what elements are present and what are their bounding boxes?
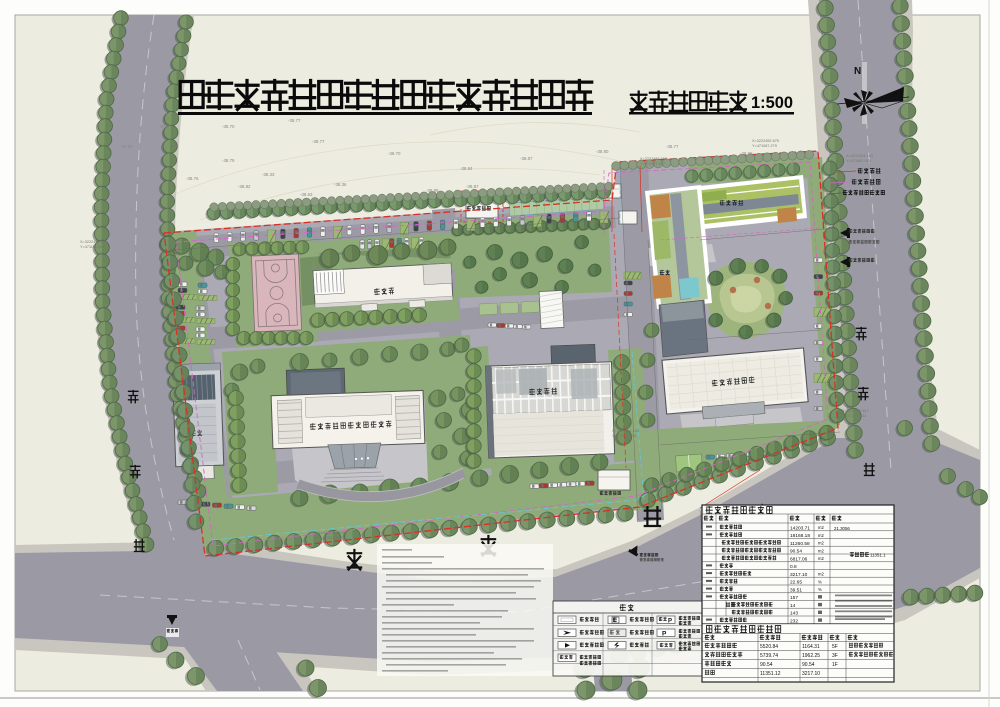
- svg-text:m2: m2: [818, 541, 824, 546]
- svg-text:X=3222349.558: X=3222349.558: [318, 531, 345, 535]
- svg-text:0.8: 0.8: [790, 564, 797, 570]
- svg-text:11351.12: 11351.12: [760, 671, 781, 677]
- svg-text:1164.31: 1164.31: [802, 644, 820, 650]
- svg-text:157: 157: [790, 595, 798, 601]
- svg-text:-38.80: -38.80: [596, 149, 609, 154]
- svg-text:-38.33: -38.33: [262, 172, 275, 177]
- svg-text:Y=471147.538: Y=471147.538: [612, 434, 637, 438]
- svg-text:18168.18: 18168.18: [790, 533, 810, 539]
- svg-text:m2: m2: [818, 572, 824, 577]
- svg-text:1962.25: 1962.25: [802, 653, 820, 659]
- svg-text:3F: 3F: [832, 653, 838, 659]
- svg-text:14: 14: [790, 603, 796, 609]
- svg-text:11351.1: 11351.1: [870, 553, 886, 558]
- svg-text:N: N: [854, 66, 861, 77]
- svg-text:1F: 1F: [832, 662, 838, 668]
- svg-text:-38.77: -38.77: [158, 124, 171, 129]
- svg-text:6817.06: 6817.06: [790, 556, 808, 562]
- svg-text:Y=471111.849: Y=471111.849: [80, 245, 104, 249]
- svg-text:5739.74: 5739.74: [760, 653, 778, 659]
- svg-text:5F: 5F: [832, 644, 838, 650]
- svg-text:-38.36: -38.36: [334, 182, 347, 187]
- svg-text:Y=471113.168: Y=471113.168: [318, 536, 342, 540]
- svg-text:-38.82: -38.82: [238, 184, 251, 189]
- svg-text:%: %: [818, 579, 822, 584]
- svg-text:-38.89: -38.89: [426, 188, 439, 193]
- svg-text:m2: m2: [818, 548, 824, 553]
- svg-text:-38.87: -38.87: [520, 156, 533, 161]
- svg-text:1:500: 1:500: [751, 93, 793, 112]
- svg-text:-38.63: -38.63: [300, 192, 313, 197]
- svg-text:-38.96: -38.96: [740, 151, 753, 156]
- svg-text:Y=471179.634: Y=471179.634: [842, 414, 867, 418]
- svg-text:3217.10: 3217.10: [790, 572, 808, 578]
- svg-text:-38.77: -38.77: [666, 144, 679, 149]
- svg-text:22.65: 22.65: [790, 580, 802, 586]
- svg-text:X=3222354.163: X=3222354.163: [612, 429, 639, 433]
- svg-text:90.54: 90.54: [760, 662, 773, 668]
- svg-text:-38.99: -38.99: [120, 144, 133, 149]
- svg-text:-38.76: -38.76: [186, 176, 199, 181]
- svg-text:-38.65: -38.65: [536, 190, 549, 195]
- svg-text:-38.70: -38.70: [388, 151, 401, 156]
- svg-text:X=3222488.066: X=3222488.066: [640, 157, 667, 161]
- svg-text:X=3222472.617: X=3222472.617: [842, 409, 869, 413]
- svg-text:11260.58: 11260.58: [790, 541, 810, 547]
- svg-text:39.51: 39.51: [790, 587, 802, 593]
- svg-text:Y=471067.279: Y=471067.279: [752, 144, 777, 148]
- svg-text:P: P: [662, 631, 667, 638]
- svg-text:21.3056: 21.3056: [834, 526, 850, 531]
- svg-text:-38.84: -38.84: [460, 166, 473, 171]
- svg-text:m2: m2: [818, 533, 824, 538]
- svg-text:-38.79: -38.79: [222, 158, 235, 163]
- svg-text:X=3222504.183: X=3222504.183: [846, 154, 873, 158]
- svg-text:m2: m2: [818, 556, 824, 561]
- svg-text:5520.84: 5520.84: [760, 644, 778, 650]
- svg-text:14203.71: 14203.71: [790, 525, 810, 531]
- svg-text:-38.70: -38.70: [222, 124, 235, 129]
- svg-text:143: 143: [790, 611, 798, 617]
- svg-text:Y=471087.050: Y=471087.050: [846, 159, 871, 163]
- svg-text:90.54: 90.54: [790, 549, 802, 555]
- svg-text:%: %: [818, 587, 822, 592]
- svg-text:-38.87: -38.87: [466, 184, 479, 189]
- svg-text:Y=471057.607: Y=471057.607: [640, 162, 665, 166]
- svg-text:X=3222485.948: X=3222485.948: [80, 240, 107, 244]
- svg-text:m2: m2: [818, 525, 824, 530]
- svg-text:-38.77: -38.77: [312, 139, 325, 144]
- svg-text:X=3222492.675: X=3222492.675: [752, 139, 779, 143]
- svg-text:-38.77: -38.77: [288, 118, 301, 123]
- svg-text:90.54: 90.54: [802, 662, 815, 668]
- svg-text:P: P: [668, 619, 672, 625]
- svg-text:3217.10: 3217.10: [802, 671, 820, 677]
